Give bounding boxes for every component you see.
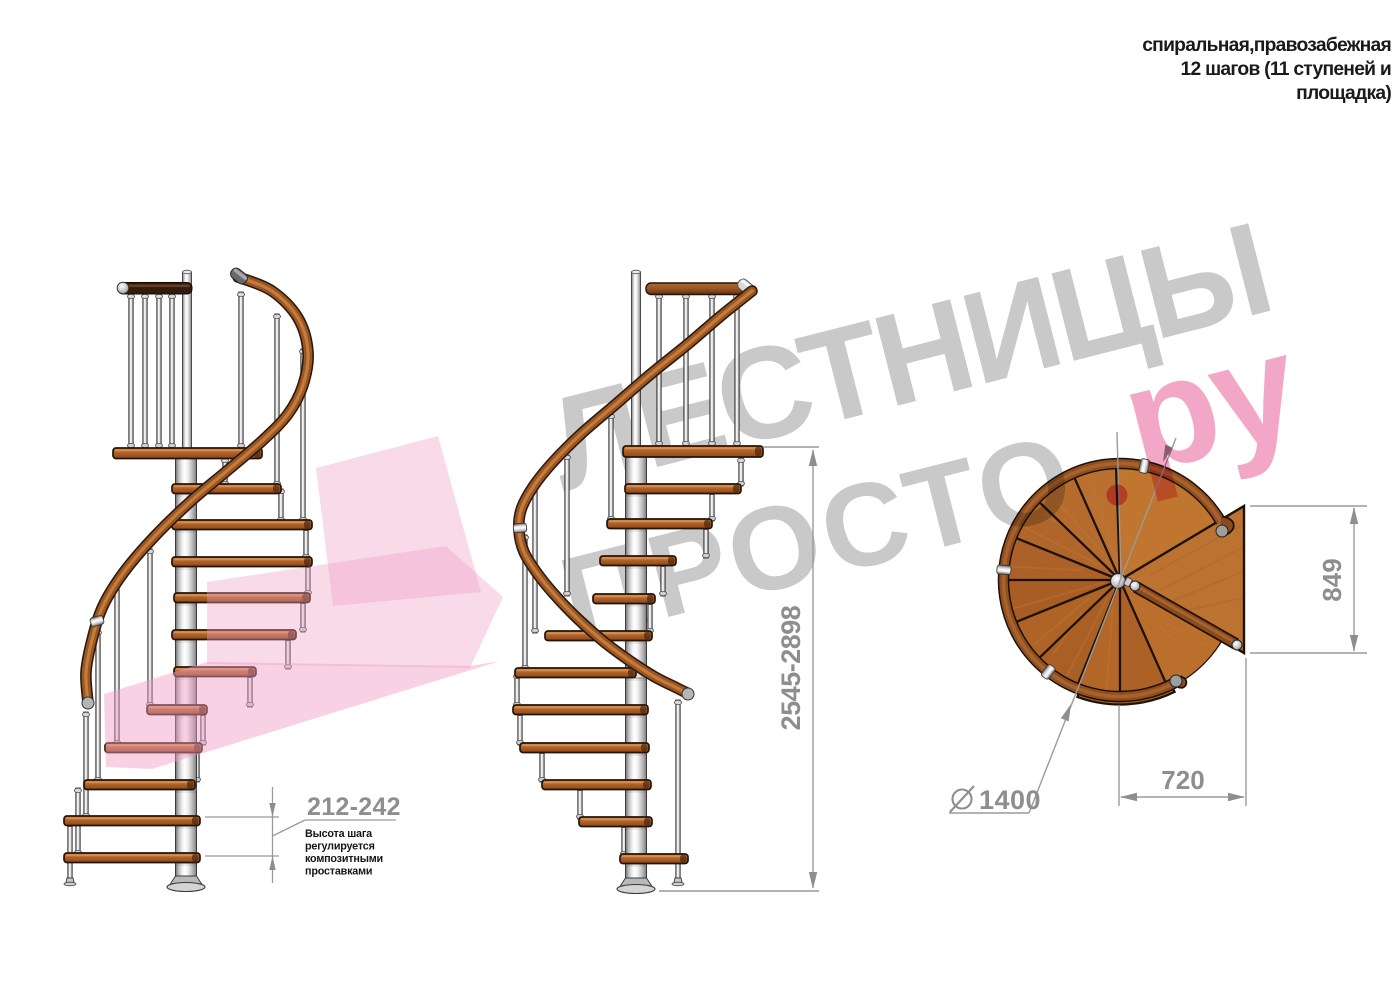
svg-text:Высота шага: Высота шага [305, 828, 373, 840]
svg-text:212-242: 212-242 [307, 793, 401, 821]
svg-text:720: 720 [1161, 765, 1204, 795]
svg-text:12 шагов (11 ступеней и: 12 шагов (11 ступеней и [1181, 59, 1391, 80]
svg-text:регулируется: регулируется [305, 841, 375, 853]
svg-text:2545-2898: 2545-2898 [776, 605, 806, 730]
svg-text:проставками: проставками [305, 866, 372, 878]
svg-text:композитными: композитными [305, 853, 383, 865]
svg-text:спиральная,правозабежная: спиральная,правозабежная [1142, 35, 1391, 56]
svg-text:площадка): площадка) [1296, 83, 1391, 104]
svg-text:849: 849 [1317, 558, 1347, 601]
svg-text:1400: 1400 [979, 785, 1041, 815]
